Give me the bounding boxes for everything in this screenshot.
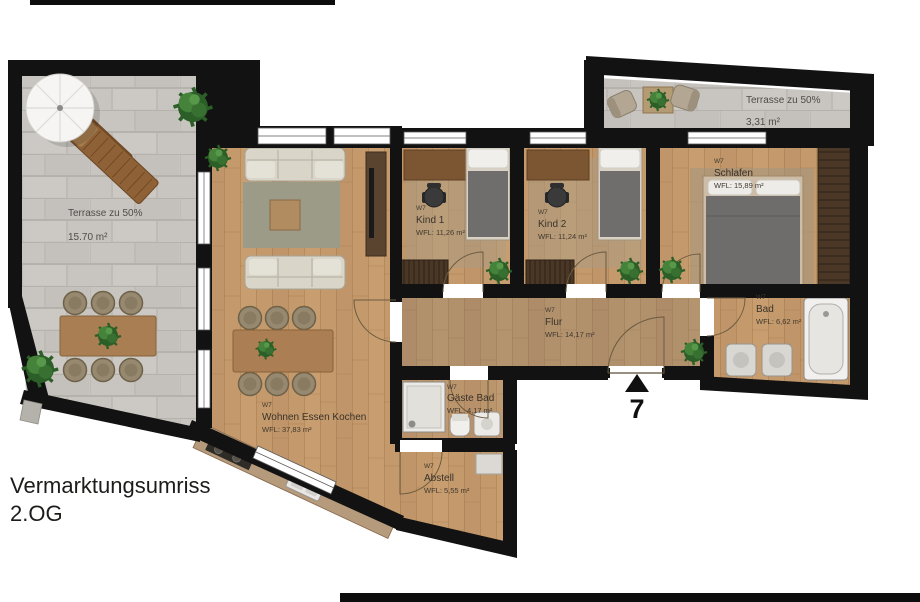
abstell-unit: W7: [424, 463, 434, 470]
door-gap-gaestebad: [450, 366, 488, 380]
floorplan-canvas: W7 Wohnen Essen Kochen WFL: 37,83 m² W7 …: [0, 0, 920, 602]
schlafen-name: Schlafen: [714, 168, 753, 179]
neighbor-wall-top-strip: [30, 0, 335, 5]
door-gap-living-flur: [390, 302, 402, 342]
sofa-bottom: [245, 256, 345, 289]
door-gap-kind1: [443, 284, 483, 298]
wohnen-unit: W7: [262, 402, 272, 409]
kind2-unit: W7: [538, 209, 548, 216]
terrace-right-area: 3,31 m²: [746, 117, 781, 128]
abstell-shelf: [476, 454, 502, 474]
bad-area: WFL: 6,62 m²: [756, 317, 802, 326]
abstell-name: Abstell: [424, 473, 454, 484]
bad-unit: W7: [756, 294, 766, 301]
kind1-name: Kind 1: [416, 215, 445, 226]
wall-terrace-left: [8, 60, 22, 308]
exterior-stub: [20, 400, 42, 424]
schlafen-area: WFL: 15,89 m²: [714, 181, 764, 190]
schlafen-wardrobe: [818, 146, 850, 288]
wall-gb-right: [503, 378, 517, 444]
kind1-desk: [404, 150, 466, 180]
gaestebad-area: WFL: 4,17 m²: [447, 406, 493, 415]
terrace-right-name: Terrasse zu 50%: [746, 95, 821, 106]
kind2-desk: [527, 150, 589, 180]
bad-name: Bad: [756, 304, 774, 315]
flur-unit: W7: [545, 307, 555, 314]
plan-title-line2: 2.OG: [10, 501, 63, 526]
tv-sideboard: [366, 152, 386, 256]
abstell-area: WFL: 5,55 m²: [424, 486, 470, 495]
flur-name: Flur: [545, 317, 563, 328]
coffee-table: [270, 200, 300, 230]
wall-right: [850, 140, 868, 396]
wall-kind2-schlafen: [646, 140, 660, 298]
door-gap-abstell: [400, 440, 442, 452]
kind2-name: Kind 2: [538, 219, 567, 230]
kind1-unit: W7: [416, 205, 426, 212]
gaestebad-unit: W7: [447, 384, 457, 391]
wohnen-area: WFL: 37,83 m²: [262, 425, 312, 434]
wall-living-kind1: [390, 140, 402, 300]
kind2-area: WFL: 11,24 m²: [538, 232, 588, 241]
wall-abstell-right: [503, 450, 517, 552]
terrace-left-area: 15.70 m²: [68, 232, 108, 243]
neighbor-wall-bottom-strip: [340, 593, 920, 602]
wall-kind1-kind2: [510, 140, 524, 298]
entrance-number: 7: [629, 394, 644, 424]
flur-area: WFL: 14,17 m²: [545, 330, 595, 339]
gaestebad-name: Gäste Bad: [447, 393, 494, 404]
door-gap-bad: [700, 298, 714, 336]
wohnen-name: Wohnen Essen Kochen: [262, 412, 366, 423]
schlafen-unit: W7: [714, 158, 724, 165]
plan-title-line1: Vermarktungsumriss: [10, 473, 211, 498]
floorplan-page: W7 Wohnen Essen Kochen WFL: 37,83 m² W7 …: [0, 0, 920, 602]
terrace-left-name: Terrasse zu 50%: [68, 208, 143, 219]
door-gap-schlafen: [662, 284, 700, 298]
door-gap-kind2: [566, 284, 606, 298]
sofa-top: [245, 148, 345, 181]
kind1-area: WFL: 11,26 m²: [416, 228, 466, 237]
